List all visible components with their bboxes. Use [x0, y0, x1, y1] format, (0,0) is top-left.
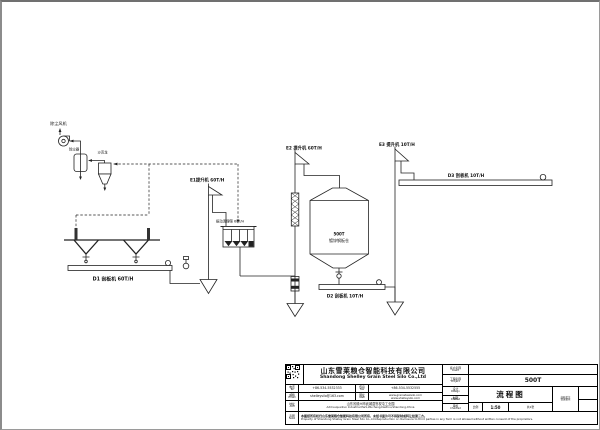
- duct-arrow-into-cyclone: [113, 163, 118, 166]
- e2-label: E2 提升机 60T/H: [286, 145, 322, 152]
- fax-value: +86-534-5532555: [369, 385, 442, 392]
- e3-elevator-symbol: [387, 147, 414, 316]
- drawing-title: 流程图: [469, 387, 552, 403]
- silo-capacity-label: 500T: [333, 232, 344, 237]
- d2-label: D2 刮板机 10T/H: [327, 293, 364, 300]
- tel-label: 电话Tel: [286, 385, 299, 392]
- project-value: 500T: [469, 375, 597, 387]
- tel-value: +86-534-5532333: [299, 385, 356, 392]
- e1-elevator-symbol: [200, 184, 226, 294]
- filter-vessel-symbol: [74, 154, 87, 180]
- qr-code-cell: 扫码关注 雪莱粮仓: [553, 387, 579, 411]
- d3-label: D3 刮板机 10T/H: [448, 172, 485, 179]
- fan-label: 除尘风机: [50, 120, 68, 127]
- design-label: 设计Design: [443, 387, 468, 396]
- silo-type-label: 镀锌钢板仓: [329, 237, 349, 243]
- address-value: 山东省德州市武城县鲁权屯工业园 Add:Luquantun Industrial…: [299, 401, 442, 411]
- sheet-label: 共1张: [509, 403, 552, 411]
- cleaning-sieve-symbol: [221, 227, 296, 277]
- address-label: 地址Add: [286, 401, 299, 411]
- d1-conveyor-symbol: [68, 257, 200, 284]
- d1-label: D1 刮板机 60T/H: [93, 276, 134, 283]
- client-value: [469, 365, 597, 375]
- title-block: S 山东雪莱粮仓智能科技有限公司 Shandong Shelley Grain …: [285, 364, 598, 425]
- web-value: www.grainsteelsilo.com www.shelleysilo.c…: [369, 393, 442, 400]
- scale-label: 比例: [469, 403, 483, 411]
- cyclone-symbol: [88, 159, 111, 191]
- e3-label: E3 提升机 10T/H: [379, 141, 415, 148]
- checked-label: 审核Checked: [443, 404, 468, 411]
- scale-value: 1:50: [483, 403, 509, 411]
- notice-text: 本图纸所有权归山东雪莱粮仓智能科技有限公司所有，未经书面许可不得复制或转让给第三…: [299, 412, 597, 424]
- email-label: 邮箱Email: [286, 393, 299, 400]
- company-name-en: Shandong Shelley Grain Steel Silo Co.,Lt…: [320, 376, 426, 381]
- drawing-sheet: 除尘风机 除尘器 沙克龙 E1提升机 60T/H 振动清理筛 60T/H D1 …: [0, 0, 600, 430]
- notice-label: 声明Note: [286, 412, 299, 424]
- email-value: shelleysilo@163.com: [299, 393, 356, 400]
- drafted-label: 制图Drafted: [443, 396, 468, 405]
- cyclone-label: 沙克龙: [98, 150, 109, 155]
- client-label: 客户名称Client: [443, 365, 468, 375]
- revision-cell-top: [579, 387, 597, 400]
- project-label: 工程名称Project: [443, 375, 468, 387]
- sieve-label: 振动清理筛 60T/H: [216, 219, 245, 224]
- fax-label: 传真Fax: [356, 385, 369, 392]
- filter-label: 除尘器: [69, 147, 80, 152]
- receiving-pit-symbol: [64, 228, 160, 263]
- revision-cell-bottom: [579, 400, 597, 412]
- web-label: 网址Web: [356, 393, 369, 400]
- e1-label: E1提升机 60T/H: [190, 177, 225, 184]
